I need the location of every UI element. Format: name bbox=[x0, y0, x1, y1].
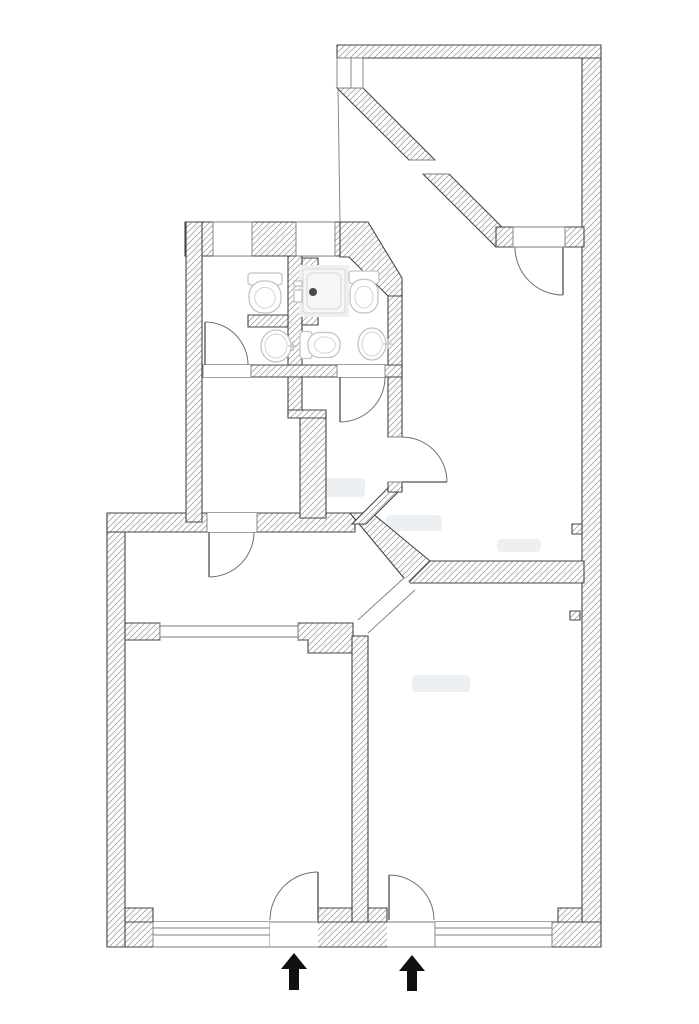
right-wall-notch-2 bbox=[570, 611, 580, 620]
bottom-window-right bbox=[435, 922, 552, 947]
room1-top-wall-left bbox=[125, 623, 160, 640]
watermark-artifact bbox=[497, 539, 541, 552]
bottom-divider-wall bbox=[352, 636, 368, 922]
mid-divider-wall bbox=[408, 561, 584, 583]
bottom-door-right-opening bbox=[387, 922, 435, 947]
bath-window-1 bbox=[213, 222, 252, 256]
toilet-icon bbox=[248, 273, 282, 313]
window-top-left bbox=[337, 58, 363, 88]
right-wall-notch-1 bbox=[572, 524, 582, 534]
anteroom-connector bbox=[288, 410, 326, 418]
shower-drain-dot bbox=[309, 288, 317, 296]
corridor-door-opening bbox=[207, 513, 257, 532]
bathL-door-opening bbox=[203, 365, 251, 377]
bottom-door-left-opening bbox=[270, 922, 318, 947]
bathL-stub-wall bbox=[248, 315, 288, 327]
watermark-artifact bbox=[386, 515, 442, 531]
vestibule-door-opening bbox=[388, 437, 402, 482]
top-room-door-opening bbox=[513, 227, 565, 247]
jamb-step-right bbox=[368, 908, 387, 922]
anteroom-right-wall bbox=[300, 418, 326, 518]
floor-plan-drawing bbox=[0, 0, 699, 1024]
jamb-step-left bbox=[318, 908, 352, 922]
watermark-artifact bbox=[412, 675, 470, 692]
shower-fitting bbox=[294, 281, 302, 286]
shower-tray-icon bbox=[294, 265, 349, 317]
shower-fitting bbox=[294, 290, 302, 302]
left-wall bbox=[107, 513, 125, 947]
right-wall bbox=[582, 58, 601, 922]
toilet-icon bbox=[349, 271, 379, 313]
vestibule-jamb bbox=[388, 482, 402, 492]
bath-window-2 bbox=[296, 222, 335, 256]
top-wall bbox=[337, 45, 601, 58]
corner-step-right bbox=[558, 908, 582, 922]
toilet-icon bbox=[300, 332, 340, 359]
bath-left-wall bbox=[186, 222, 202, 522]
bottom-window-left bbox=[153, 922, 270, 947]
bathR-door-opening bbox=[337, 365, 385, 377]
floor-plan-page bbox=[0, 0, 699, 1024]
corner-step-left bbox=[125, 908, 153, 922]
